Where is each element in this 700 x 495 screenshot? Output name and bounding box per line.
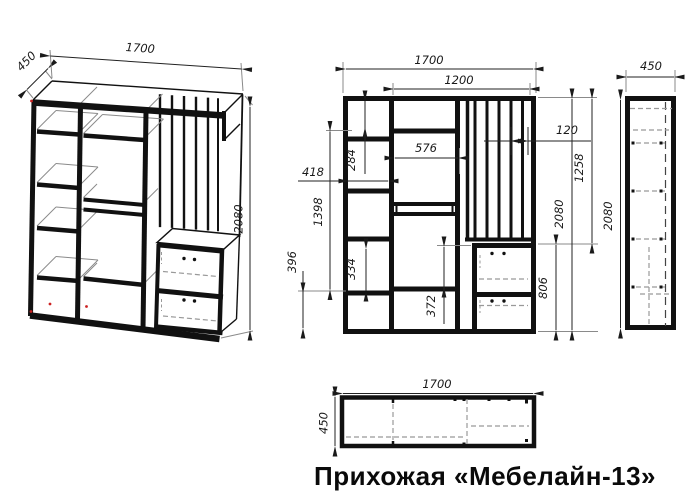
drawer-handle-dot <box>502 299 505 302</box>
dim-upper-right-span: 1258 <box>572 153 586 182</box>
iso-drawer-cabinet <box>156 229 240 334</box>
drawer-handle-dot <box>490 252 493 255</box>
dim-iso-depth: 450 <box>13 48 38 73</box>
plan-outline <box>342 398 534 447</box>
dim-iso-height: 2080 <box>232 204 246 233</box>
dim-slat-spacing: 120 <box>556 123 578 137</box>
dim-left-middle-span: 1398 <box>311 197 325 226</box>
side-view: 450 2080 <box>601 59 675 328</box>
isometric-view: 450 1700 2080 <box>13 40 253 339</box>
drawer-handle-dot <box>193 299 196 302</box>
fastener-mark <box>30 100 33 103</box>
iso-divider-1 <box>78 106 81 319</box>
side-outline <box>628 99 674 328</box>
drawing-canvas: 450 1700 2080 <box>0 0 700 460</box>
product-title: Прихожая «Мебелайн-13» <box>275 461 695 492</box>
dim-side-height: 2080 <box>601 201 615 230</box>
dim-left-top-section: 284 <box>344 149 358 171</box>
drawer-handle-dot <box>193 258 196 261</box>
dim-front-height: 2080 <box>552 199 566 228</box>
plan-dimensions: 1700 450 <box>317 377 534 446</box>
drawer-handle-dot <box>182 257 185 260</box>
iso-left-panel <box>31 100 35 316</box>
drawer-handle-dot <box>490 299 493 302</box>
side-fitting-marks <box>632 142 663 289</box>
front-drawer-cabinet <box>472 243 531 329</box>
dim-front-inner-width: 1200 <box>444 73 473 87</box>
dim-plan-width: 1700 <box>422 377 451 391</box>
fastener-mark <box>30 310 33 313</box>
dim-left-bottom-section: 396 <box>285 251 299 273</box>
fastener-mark <box>85 305 88 308</box>
dim-drawer-unit-height: 806 <box>536 277 550 299</box>
dim-middle-bottom-section: 372 <box>424 295 438 317</box>
technical-drawing-sheet: 450 1700 2080 <box>0 0 700 495</box>
dim-front-width: 1700 <box>414 53 443 67</box>
dim-left-shelf-section: 334 <box>344 258 358 280</box>
fastener-mark <box>49 303 52 306</box>
dim-left-column-width: 418 <box>302 165 324 179</box>
dim-plan-depth: 450 <box>317 412 331 434</box>
drawer-handle-dot <box>502 252 505 255</box>
plan-view: 1700 450 <box>317 377 535 447</box>
iso-divider-2 <box>143 111 146 329</box>
dim-iso-width: 1700 <box>125 40 155 56</box>
drawer-handle-dot <box>182 298 185 301</box>
front-view: 1700 1200 576 284 418 1398 334 396 372 1… <box>285 53 598 332</box>
plan-fitting-marks <box>454 398 529 446</box>
dim-side-depth: 450 <box>640 59 662 73</box>
dim-front-shelf-span: 576 <box>415 141 437 155</box>
front-slat-panel <box>465 101 531 240</box>
